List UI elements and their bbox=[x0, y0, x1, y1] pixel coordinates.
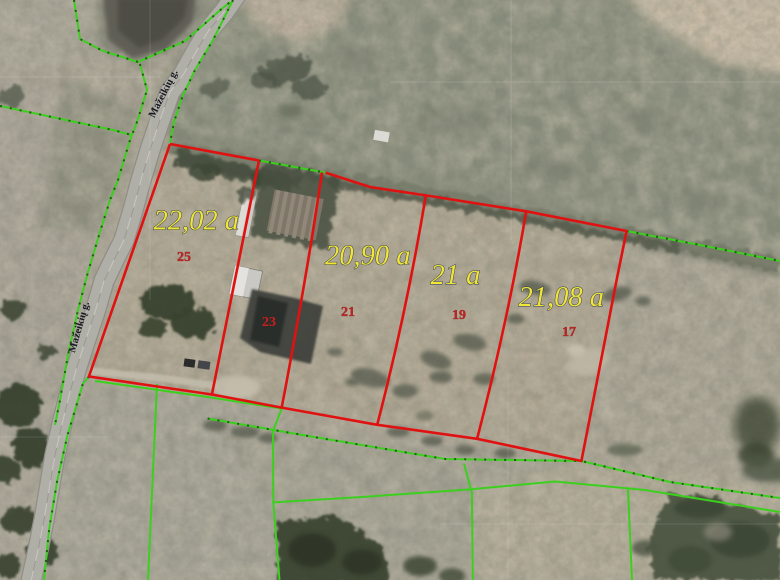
svg-text:23: 23 bbox=[262, 315, 276, 330]
svg-text:21 a: 21 a bbox=[431, 260, 481, 291]
svg-text:21: 21 bbox=[341, 305, 355, 320]
svg-text:20,90 a: 20,90 a bbox=[325, 241, 411, 272]
svg-text:22,02 a: 22,02 a bbox=[154, 206, 240, 237]
svg-text:25: 25 bbox=[177, 250, 191, 265]
svg-text:21,08 a: 21,08 a bbox=[519, 282, 605, 313]
svg-text:17: 17 bbox=[562, 325, 576, 340]
svg-text:19: 19 bbox=[452, 308, 466, 323]
